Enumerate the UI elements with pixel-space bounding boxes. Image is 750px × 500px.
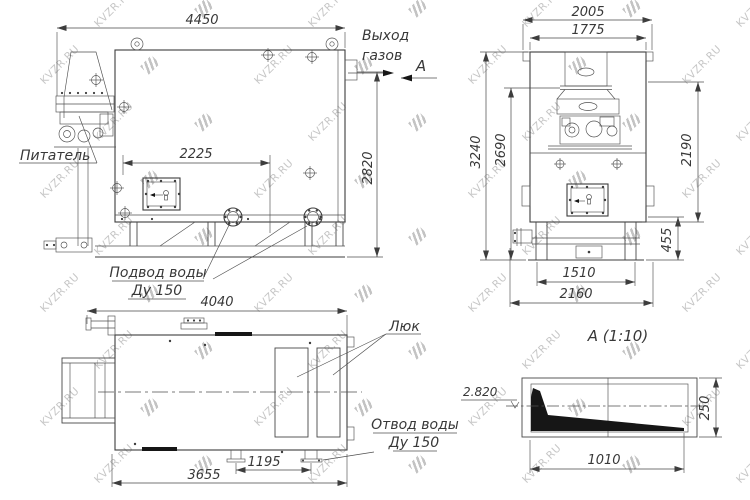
gas-flow-arrow-icon [383, 70, 394, 76]
boiler-body-front [522, 52, 654, 222]
hatch-label: Люк [297, 319, 421, 377]
feeder-drive-front [548, 116, 632, 149]
water-inlet-dn: Ду 150 [131, 283, 182, 299]
dim-text: 1010 [587, 453, 620, 468]
hatch-panel [317, 348, 340, 437]
section-arrow-icon [401, 75, 412, 82]
dim-text: 1510 [562, 266, 595, 281]
dim-front-right-height: 2190 [642, 82, 704, 222]
water-outlet-text: Отвод воды [371, 417, 459, 433]
feed-duct [565, 52, 607, 86]
gasket-strip [215, 332, 252, 336]
detail-a-view: А (1:10) 2.820 250 1010 [461, 327, 722, 473]
detail-title: А (1:10) [587, 327, 648, 345]
dim-side-overall-length: 4450 [57, 13, 345, 96]
gas-outlet-text-2: газов [362, 48, 402, 64]
flue-outlet-stub [345, 60, 357, 80]
drawing-sheet: KVZR.RUKVZR.RUKVZR.RUKVZR.RUKVZR.RUKVZR.… [0, 0, 750, 500]
dim-text: 2005 [571, 5, 604, 20]
boiler-body-side [115, 50, 345, 222]
corner-pipe-top [86, 316, 115, 335]
dim-text: 455 [660, 228, 675, 253]
dim-text: 2225 [179, 147, 212, 162]
dim-text: 1195 [247, 455, 280, 470]
dim-text: 2190 [680, 133, 695, 166]
dim-text: 4040 [200, 295, 233, 310]
dim-text: 2820 [361, 151, 376, 184]
bottom-pipe [227, 450, 245, 462]
side-view: 4450 [19, 13, 437, 299]
dim-side-hatch-offset: 2225 [123, 147, 270, 233]
dim-text: 3240 [469, 135, 484, 168]
dim-top-outlet-offset: 1195 [236, 455, 311, 474]
water-inlet-flange [224, 208, 242, 226]
hatch-door-side [143, 178, 180, 210]
elevation-mark: 2.820 [461, 385, 519, 408]
dim-text: 4450 [185, 13, 218, 28]
elevation-text: 2.820 [463, 385, 498, 399]
top-flange [181, 318, 207, 329]
feeder-assembly [54, 52, 116, 147]
dim-detail-length: 1010 [530, 433, 684, 473]
hatch-door-front [567, 184, 608, 216]
water-outlet-dn: Ду 150 [388, 435, 439, 451]
dim-front-base-inner-width: 1510 [537, 262, 635, 286]
dim-front-body-width: 1775 [530, 23, 646, 50]
gasket-strip [142, 447, 177, 451]
front-view: 2005 1775 [469, 5, 704, 307]
top-view: 4040 [62, 295, 459, 487]
position-marks-side [110, 48, 319, 220]
water-outlet-label: Отвод воды Ду 150 [323, 417, 459, 460]
drawing-canvas: 4450 [0, 0, 750, 500]
weld-wedge-profile [531, 388, 684, 431]
dim-side-overall-height: 2820 [347, 72, 383, 257]
dim-front-mid-height: 2690 [494, 88, 560, 260]
water-inlet-text: Подвод воды [109, 265, 206, 281]
elevation-arrow-icon [511, 401, 519, 408]
base-frame-front [513, 222, 644, 260]
dim-front-base-height: 455 [646, 217, 684, 260]
dim-text: 250 [698, 396, 713, 421]
hatch-label-text: Люк [388, 319, 420, 335]
section-a-arrow: А [401, 57, 437, 81]
dim-text: 3655 [187, 468, 220, 483]
lifting-lug [131, 38, 143, 50]
lifting-lug [326, 38, 338, 50]
boiler-body-top [62, 316, 362, 462]
dim-text: 1775 [571, 23, 604, 38]
dim-text: 2690 [494, 133, 509, 166]
dim-text: 2160 [559, 287, 592, 302]
feeder-label: Питатель [19, 116, 97, 164]
water-outlet-flange-top [301, 450, 322, 462]
section-letter: А [415, 57, 426, 75]
hatch-panel [275, 348, 308, 437]
feeder-label-text: Питатель [20, 148, 90, 164]
feeder-box-top [62, 358, 115, 423]
gas-outlet-text-1: Выход [362, 28, 409, 44]
water-inlet-flange [304, 208, 322, 226]
dim-top-overall-length: 4040 [87, 295, 347, 338]
dim-detail-height: 250 [698, 378, 722, 437]
support-frame-side [44, 148, 345, 257]
